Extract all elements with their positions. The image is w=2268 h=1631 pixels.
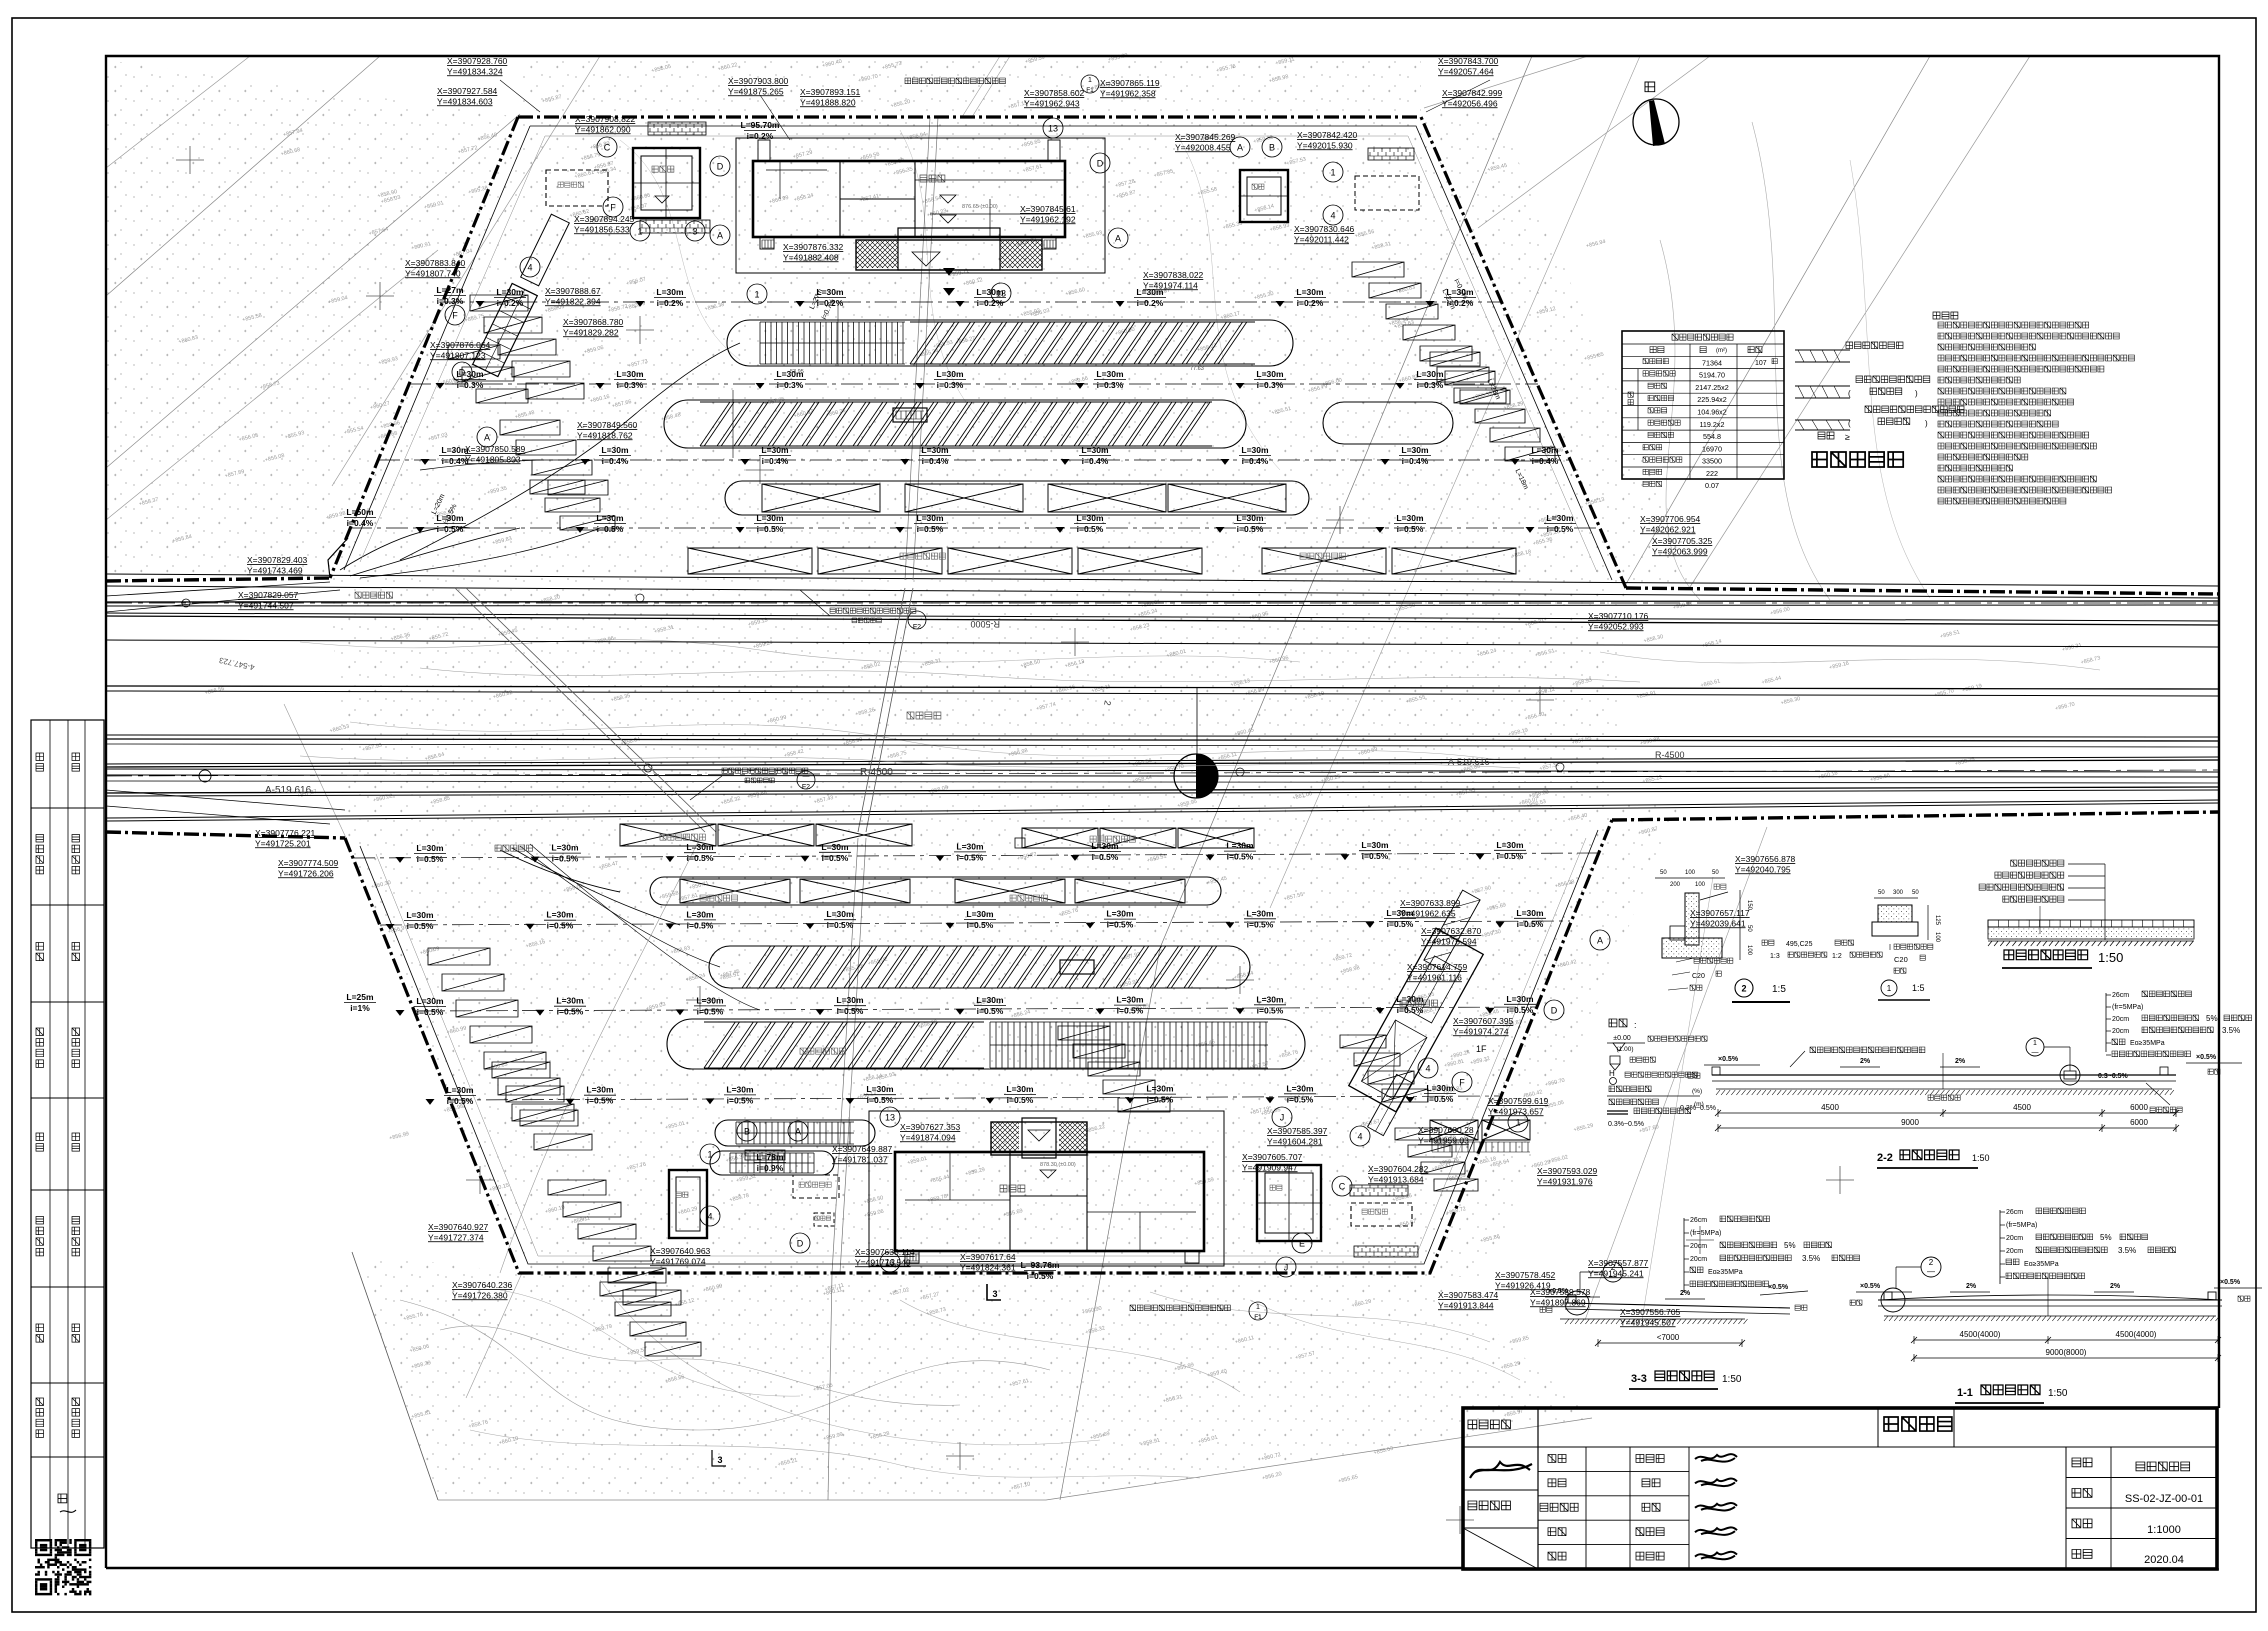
svg-text:Y=491818.762: Y=491818.762 [577,430,633,440]
svg-text:L=30m: L=30m [756,513,784,523]
svg-text:<7000: <7000 [1657,1333,1680,1342]
svg-text:i=0.3%: i=0.3% [1097,380,1124,390]
svg-text:i=0.5%: i=0.5% [1077,524,1104,534]
svg-text:≥: ≥ [1845,432,1850,442]
svg-text:16970: 16970 [1702,444,1722,453]
svg-text:X=3907583.474: X=3907583.474 [1438,1290,1499,1300]
svg-text:i=0.4%: i=0.4% [602,456,629,466]
svg-text:L=30m: L=30m [616,369,644,379]
svg-text:i=0.5%: i=0.5% [827,920,854,930]
svg-text:100: 100 [1695,882,1706,888]
svg-text::: : [1634,1020,1637,1030]
svg-text:L=30m: L=30m [416,996,444,1006]
svg-text:5%: 5% [1784,1241,1796,1250]
svg-text:X=3907843.700: X=3907843.700 [1438,56,1499,66]
svg-text:107: 107 [1755,360,1767,367]
svg-text:i=0.5%: i=0.5% [437,524,464,534]
svg-text:J: J [1284,1262,1289,1272]
svg-text:L=30m: L=30m [1081,445,1109,455]
svg-text:L=30m: L=30m [916,513,944,523]
svg-text:X=3907585.397: X=3907585.397 [1267,1126,1328,1136]
svg-text:Y=492063.999: Y=492063.999 [1652,546,1708,556]
svg-text:×0.5%: ×0.5% [1548,1288,1569,1295]
svg-text:X=3907893.151: X=3907893.151 [800,87,861,97]
svg-text:5%: 5% [2206,1014,2218,1023]
svg-text:2147.25x2: 2147.25x2 [1695,383,1729,392]
svg-text:Y=491874.094: Y=491874.094 [900,1132,956,1142]
svg-text:i=0.5%: i=0.5% [757,524,784,534]
svg-text:i=0.5%: i=0.5% [867,1095,894,1105]
svg-text:Y=492011.442: Y=492011.442 [1294,234,1349,244]
svg-text:L=30m: L=30m [601,445,629,455]
svg-text:3.5%: 3.5% [2222,1026,2240,1035]
svg-text:1: 1 [2033,1040,2037,1047]
svg-text:Y=491909.947: Y=491909.947 [1242,1162,1298,1172]
svg-text:104.96x2: 104.96x2 [1697,408,1727,417]
svg-text:i=0.3%: i=0.3% [1257,380,1284,390]
svg-text:Y=491856.533: Y=491856.533 [574,224,630,234]
svg-text:1: 1 [637,226,642,236]
svg-text:E: E [1299,1238,1305,1248]
svg-text:L=30m: L=30m [1496,840,1524,850]
svg-text:13: 13 [1048,123,1058,133]
svg-text:i=0.9%: i=0.9% [757,1163,784,1173]
svg-text:i=0.5%: i=0.5% [1507,1005,1534,1015]
svg-text:A: A [1237,142,1243,152]
svg-text:300: 300 [1893,890,1904,896]
svg-text:X=3907829.403: X=3907829.403 [247,555,308,565]
svg-text:X=3907894.245: X=3907894.245 [574,214,635,224]
svg-text:L=30m: L=30m [1076,513,1104,523]
svg-text:26cm: 26cm [2006,1209,2023,1216]
svg-text:X=3907705.325: X=3907705.325 [1652,536,1713,546]
svg-text:L=30m: L=30m [586,1085,614,1095]
svg-text:20cm: 20cm [1690,1243,1707,1250]
svg-text:D: D [797,1238,804,1248]
svg-text:A: A [795,1126,801,1136]
svg-text:5194.70: 5194.70 [1699,371,1725,380]
svg-text:Y=491726.380: Y=491726.380 [452,1290,508,1300]
svg-text:L=30m: L=30m [1226,841,1254,851]
svg-text:X=3907614.759: X=3907614.759 [1407,962,1468,972]
svg-text:Y=491913.684: Y=491913.684 [1368,1174,1424,1184]
svg-text:i=0.5%: i=0.5% [822,853,849,863]
svg-text:L=30m: L=30m [1236,513,1264,523]
svg-text:Eo≥35MPa: Eo≥35MPa [2130,1040,2165,1047]
svg-text:X=3907858.602: X=3907858.602 [1024,88,1085,98]
svg-text:Y=492056.496: Y=492056.496 [1442,98,1498,108]
svg-text:5%: 5% [2100,1233,2112,1242]
svg-text:i=0.5%: i=0.5% [552,854,579,864]
svg-text:SS-02-JZ-00-01: SS-02-JZ-00-01 [2125,1493,2203,1505]
svg-text:i=0.2%: i=0.2% [657,298,684,308]
svg-text:X=3907593.029: X=3907593.029 [1537,1166,1598,1176]
svg-text:L=50m: L=50m [346,507,374,517]
svg-text:i=0.2%: i=0.2% [1297,298,1324,308]
svg-text:1:5: 1:5 [1772,984,1786,995]
svg-text:125: 125 [1934,915,1940,926]
svg-text:A: A [1115,233,1121,243]
svg-text:i=0.2%: i=0.2% [497,298,524,308]
svg-text:X=3907600.28: X=3907600.28 [1418,1125,1474,1135]
svg-text:L=30m: L=30m [1296,287,1324,297]
svg-text:i=0.5%: i=0.5% [1397,524,1424,534]
svg-text:F2: F2 [913,624,921,631]
svg-text:50: 50 [1746,925,1752,932]
svg-text:i=0.5%: i=0.5% [1227,852,1254,862]
svg-text:i=0.2%: i=0.2% [1137,298,1164,308]
svg-text:X=3907706.954: X=3907706.954 [1640,514,1701,524]
svg-text:1:5: 1:5 [1912,983,1925,993]
svg-text:13: 13 [885,1112,895,1122]
svg-text:Y=491931.976: Y=491931.976 [1537,1176,1593,1186]
svg-text:L=30m: L=30m [1256,994,1284,1004]
svg-text:X=3907842.999: X=3907842.999 [1442,88,1503,98]
svg-text:i=0.5%: i=0.5% [557,1007,584,1017]
svg-text:(1.00): (1.00) [1617,1046,1634,1053]
svg-text:C20: C20 [1894,955,1908,964]
svg-text:1: 1 [1887,984,1892,993]
svg-text:(fr=5MPa): (fr=5MPa) [2112,1004,2143,1011]
svg-text:X=3907865.119: X=3907865.119 [1100,78,1160,88]
svg-text:2: 2 [1929,1258,1934,1267]
svg-text:150: 150 [1746,900,1752,911]
svg-text:Y=491744.507: Y=491744.507 [238,600,294,610]
svg-text:Y=491807.740: Y=491807.740 [405,268,461,278]
svg-text:X=3907776.221: X=3907776.221 [255,828,316,838]
svg-text:L=30m: L=30m [1106,909,1134,919]
svg-text:Y=491805.803: Y=491805.803 [465,454,521,464]
svg-text:200: 200 [1670,882,1681,888]
svg-text:20cm: 20cm [1690,1256,1707,1263]
svg-text:3-3: 3-3 [1631,1373,1647,1385]
svg-text:Y=491962.192: Y=491962.192 [1020,214,1076,224]
svg-text:Y=491781.037: Y=491781.037 [832,1154,888,1164]
svg-text:L=30m: L=30m [551,843,579,853]
svg-text:L=30m: L=30m [836,995,864,1005]
svg-text:R-4500: R-4500 [1655,750,1685,760]
svg-text:L=30m: L=30m [1241,445,1269,455]
svg-text:X=3907838.022: X=3907838.022 [1143,270,1204,280]
svg-text:100: 100 [1934,932,1940,943]
svg-text:L=30m: L=30m [1506,994,1534,1004]
svg-text:C: C [1339,1181,1346,1191]
svg-text:X=3907876.064: X=3907876.064 [430,340,491,350]
svg-text:L=30m: L=30m [456,369,484,379]
svg-text:—: — [803,773,810,780]
svg-text:i=0.3%: i=0.3% [777,380,804,390]
svg-text:Y=491875.265: Y=491875.265 [728,86,784,96]
svg-text:(%): (%) [1692,1088,1702,1095]
svg-text:50: 50 [1712,870,1719,876]
svg-text:4: 4 [527,262,532,272]
svg-text:50: 50 [1912,890,1919,896]
svg-text:X=3907640.963: X=3907640.963 [650,1246,711,1256]
svg-text:—: — [1927,1267,1935,1276]
svg-text:X=3907556.705: X=3907556.705 [1620,1307,1681,1317]
svg-text:1:50: 1:50 [1722,1374,1742,1385]
svg-text:X=3907868.780: X=3907868.780 [563,317,624,327]
svg-text:i=0.5%: i=0.5% [1287,1094,1314,1104]
svg-text:3: 3 [717,1455,722,1465]
svg-text:Y=491959.03: Y=491959.03 [1418,1135,1469,1145]
svg-text:L=30m: L=30m [1091,841,1119,851]
svg-text:3: 3 [692,226,697,236]
svg-text:—: — [914,613,921,620]
svg-text:i=0.5%: i=0.5% [917,524,944,534]
svg-text:i=0.2%: i=0.2% [747,131,774,141]
svg-text:i=0.5%: i=0.5% [1497,851,1524,861]
svg-text:1:3: 1:3 [1770,953,1780,960]
svg-text:Y=491807.123: Y=491807.123 [430,350,486,360]
svg-text:L=30m: L=30m [1096,369,1124,379]
svg-text:×0.5%: ×0.5% [1718,1056,1739,1063]
svg-text:Y=492052.993: Y=492052.993 [1588,621,1644,631]
svg-text:X=3907888.67: X=3907888.67 [545,286,601,296]
svg-text:L=25m: L=25m [346,992,374,1002]
svg-text:i=0.5%: i=0.5% [1362,851,1389,861]
svg-text:i=0.5%: i=0.5% [407,921,434,931]
svg-text:X=3907638.114: X=3907638.114 [855,1247,915,1257]
svg-text:D: D [717,161,724,171]
svg-text:Y=491897.869: Y=491897.869 [1530,1297,1586,1307]
svg-text:Y=491973.657: Y=491973.657 [1488,1106,1544,1116]
svg-text:2%: 2% [1680,1290,1691,1297]
svg-text:F2: F2 [802,784,810,791]
svg-text:X=3907927.584: X=3907927.584 [437,86,498,96]
svg-text:L=30m: L=30m [416,843,444,853]
svg-text:Y=491776.549: Y=491776.549 [855,1257,911,1267]
svg-text:Y=491962.358: Y=491962.358 [1100,88,1156,98]
svg-text:L=30m: L=30m [1361,840,1389,850]
svg-text:i=0.5%: i=0.5% [1237,524,1264,534]
svg-text:1: 1 [1088,77,1092,84]
svg-text:i=0.5%: i=0.5% [1247,919,1274,929]
svg-text:i=0.4%: i=0.4% [1402,456,1429,466]
svg-text:L=30m: L=30m [826,909,854,919]
svg-text:L=30m: L=30m [1416,369,1444,379]
svg-text:L=30m: L=30m [1006,1084,1034,1094]
svg-text:876.65 (±0.00): 876.65 (±0.00) [962,204,998,210]
svg-text:): ) [1915,389,1918,398]
svg-text:9000: 9000 [1901,1118,1919,1127]
svg-text:0.07: 0.07 [1705,481,1719,490]
svg-text:±0.00: ±0.00 [1613,1035,1631,1042]
svg-text:(: ( [1848,389,1851,398]
svg-text:i=0.4%: i=0.4% [922,456,949,466]
svg-text:Eo≥35MPa: Eo≥35MPa [2024,1261,2059,1268]
svg-text:Y=491962.943: Y=491962.943 [1024,98,1080,108]
svg-text:L=30m: L=30m [1116,995,1144,1005]
svg-text:×0.5%: ×0.5% [1768,1284,1789,1291]
svg-text:6000: 6000 [2130,1103,2148,1112]
svg-text:i=0.5%: i=0.5% [587,1096,614,1106]
svg-text:(fr=5MPa): (fr=5MPa) [2006,1222,2037,1229]
svg-text:A-519.616: A-519.616 [265,785,312,796]
svg-text:1:2: 1:2 [1832,953,1842,960]
svg-text:1:50: 1:50 [2098,950,2123,965]
svg-text:X=3907656.878: X=3907656.878 [1735,854,1796,864]
svg-text:D: D [1551,1005,1558,1015]
svg-text:i=0.5%: i=0.5% [957,852,984,862]
svg-text:X=3907578.452: X=3907578.452 [1495,1270,1556,1280]
svg-text:L=30m: L=30m [1286,1083,1314,1093]
svg-text:i=0.5%: i=0.5% [1547,524,1574,534]
svg-text:i=0.3%: i=0.3% [937,380,964,390]
svg-text:X=3907617.64: X=3907617.64 [960,1252,1016,1262]
svg-text:2020.04: 2020.04 [2144,1554,2184,1566]
svg-text:L=30m: L=30m [1426,1083,1454,1093]
svg-text:L=30m: L=30m [1396,513,1424,523]
svg-text:20cm: 20cm [2006,1235,2023,1242]
svg-text:i=0.5%: i=0.5% [1092,852,1119,862]
svg-text:4500(4000): 4500(4000) [1960,1330,2001,1339]
svg-text:C20: C20 [1692,973,1705,980]
svg-text:20cm: 20cm [2006,1248,2023,1255]
svg-text:Y=491829.282: Y=491829.282 [563,327,619,337]
svg-text:0.3~0.5%: 0.3~0.5% [2098,1073,2129,1080]
svg-text:77.63: 77.63 [1190,366,1204,372]
svg-text:26cm: 26cm [2112,992,2129,999]
svg-text:L=30m: L=30m [761,445,789,455]
svg-text:L=30m: L=30m [976,287,1004,297]
svg-text:Y=491727.374: Y=491727.374 [428,1232,484,1242]
svg-text:i=0.5%: i=0.5% [1007,1095,1034,1105]
svg-text:i=0.5%: i=0.5% [1257,1005,1284,1015]
svg-text:50: 50 [1660,870,1667,876]
svg-text:Y=492008.455: Y=492008.455 [1175,142,1231,152]
svg-text:Eo≥35MPa: Eo≥35MPa [1708,1269,1743,1276]
svg-text:Y=491822.394: Y=491822.394 [545,296,601,306]
svg-text:X=3907903.800: X=3907903.800 [728,76,789,86]
svg-text:L=30m: L=30m [696,995,724,1005]
svg-text:2%: 2% [1966,1283,1977,1290]
svg-text:F1: F1 [1254,1314,1262,1321]
svg-text:L=30m: L=30m [726,1084,754,1094]
svg-text:1:50: 1:50 [2048,1388,2068,1399]
svg-text:119.2x2: 119.2x2 [1699,420,1724,429]
svg-text:i=0.5%: i=0.5% [967,920,994,930]
svg-text:X=3907845.269: X=3907845.269 [1175,132,1236,142]
svg-text:L=30m: L=30m [496,287,524,297]
svg-text:L=30m: L=30m [406,910,434,920]
svg-text:J: J [1280,1112,1285,1122]
svg-text:4: 4 [1425,1063,1430,1073]
svg-text:0.3%~0.5%: 0.3%~0.5% [1680,1105,1716,1112]
svg-text:Y=491725.201: Y=491725.201 [255,838,311,848]
svg-text:2: 2 [1741,984,1746,994]
svg-text:X=3907710.176: X=3907710.176 [1588,611,1649,621]
svg-text:i=0.5%: i=0.5% [1027,1271,1054,1281]
svg-text:L=30m: L=30m [866,1084,894,1094]
svg-text:i=0.5%: i=0.5% [977,1006,1004,1016]
svg-text:L=95.70m: L=95.70m [741,120,780,130]
svg-text:4500: 4500 [2013,1103,2031,1112]
svg-text:4500(4000): 4500(4000) [2116,1330,2157,1339]
svg-text:(m²): (m²) [1716,348,1727,354]
svg-text:Y=491962.635: Y=491962.635 [1400,908,1456,918]
svg-text:—: — [2032,1049,2039,1056]
svg-text:222: 222 [1706,469,1718,478]
svg-text:L=30m: L=30m [686,842,714,852]
svg-text:—: — [1609,1272,1617,1281]
svg-text:1: 1 [1515,1117,1520,1127]
svg-text:2%: 2% [1955,1058,1966,1065]
svg-text:2-2: 2-2 [1877,1152,1893,1164]
svg-text:Y=491862.090: Y=491862.090 [575,124,631,134]
svg-text:i=0.5%: i=0.5% [1387,919,1414,929]
svg-text:L=30m: L=30m [1546,513,1574,523]
svg-text:i=0.5%: i=0.5% [687,920,714,930]
svg-text:1: 1 [1330,167,1335,177]
svg-text:Y=491824.361: Y=491824.361 [960,1262,1016,1272]
svg-text:i=0.4%: i=0.4% [347,518,374,528]
svg-text:4: 4 [1330,210,1335,220]
svg-text:X=3907599.619: X=3907599.619 [1488,1096,1549,1106]
svg-text:0.3%~0.5%: 0.3%~0.5% [1608,1121,1644,1128]
svg-text:L=30m: L=30m [921,445,949,455]
svg-text:L=30m: L=30m [1401,445,1429,455]
svg-text:L=30m: L=30m [656,287,684,297]
svg-text:3.5%: 3.5% [1802,1254,1820,1263]
svg-text:i=0.4%: i=0.4% [1532,456,1559,466]
svg-text:C: C [604,142,611,152]
svg-text:H: H [1609,1069,1615,1078]
svg-text:L=93.76m: L=93.76m [1021,1260,1060,1270]
svg-text:Y=491913.844: Y=491913.844 [1438,1300,1494,1310]
svg-text:X=3907640.927: X=3907640.927 [428,1222,489,1232]
svg-text:1:50: 1:50 [1972,1153,1990,1163]
svg-text:F: F [1459,1077,1465,1087]
svg-text:i=1%: i=1% [350,1003,370,1013]
svg-text:Y=491961.116: Y=491961.116 [1407,972,1462,982]
svg-text:L=30m: L=30m [1256,369,1284,379]
svg-text:X=3907876.332: X=3907876.332 [783,242,844,252]
svg-text:i=0.5%: i=0.5% [727,1095,754,1105]
svg-text:D: D [1097,158,1104,168]
svg-text:i=0.3%: i=0.3% [437,296,464,306]
svg-text:Y=491975.594: Y=491975.594 [1421,936,1477,946]
svg-text:3: 3 [992,1289,997,1299]
svg-text:×0.5%: ×0.5% [1860,1283,1881,1290]
svg-text:L=30m: L=30m [936,369,964,379]
svg-text:B: B [744,1126,750,1136]
svg-text:Y=492062.921: Y=492062.921 [1640,524,1696,534]
svg-text:Y=491834.603: Y=491834.603 [437,96,493,106]
svg-text:L=30m: L=30m [1146,1084,1174,1094]
svg-text:6000: 6000 [2130,1118,2148,1127]
svg-text:1F: 1F [1476,1044,1487,1054]
svg-text:X=3907607.395: X=3907607.395 [1453,1016,1514,1026]
svg-text:554.8: 554.8 [1703,432,1721,441]
svg-text:(fr=5MPa): (fr=5MPa) [1690,1230,1721,1237]
svg-text:i=0.5%: i=0.5% [697,1006,724,1016]
svg-text:X=3907908.822: X=3907908.822 [575,114,636,124]
svg-text:X=3907604.282: X=3907604.282 [1368,1164,1429,1174]
svg-text:L=30m: L=30m [1531,445,1559,455]
svg-text:Y=492015.930: Y=492015.930 [1297,140,1353,150]
svg-text:L=30m: L=30m [446,1085,474,1095]
svg-text:X=3907649.887: X=3907649.887 [832,1144,893,1154]
svg-text:A: A [717,230,723,240]
svg-text:i=0.3%: i=0.3% [617,380,644,390]
svg-text:X=3907829.057: X=3907829.057 [238,590,299,600]
svg-text:26cm: 26cm [1690,1217,1707,1224]
svg-text:225.94x2: 225.94x2 [1697,395,1727,404]
svg-text:1: 1 [754,289,759,299]
svg-text:100: 100 [1746,945,1752,956]
svg-text:4500: 4500 [1821,1103,1839,1112]
